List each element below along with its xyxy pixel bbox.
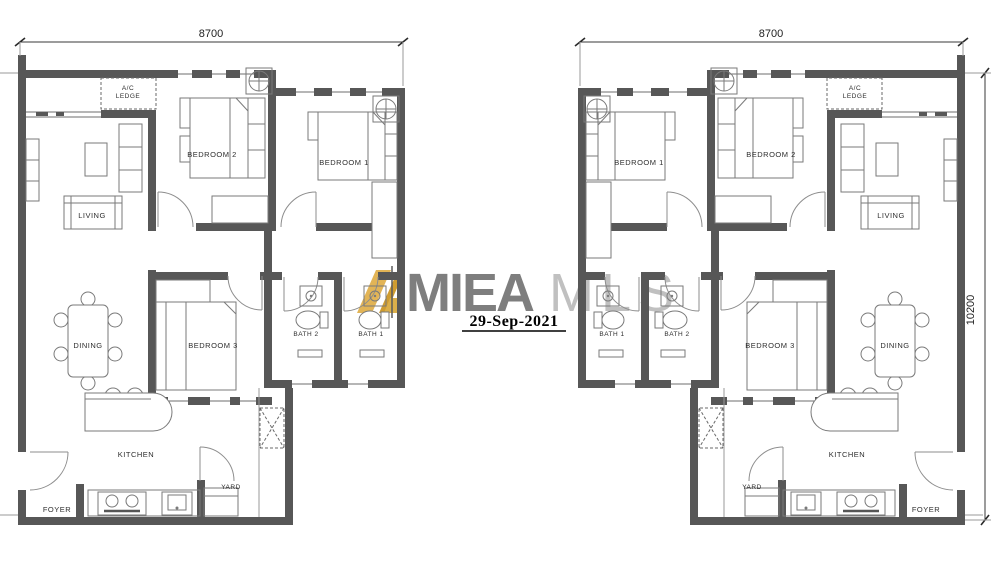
room-label-kitchen: KITCHEN xyxy=(118,450,154,459)
room-label-bath-1: BATH 1 xyxy=(599,331,624,338)
room-label-yard: YARD xyxy=(221,484,241,491)
room-label-bedroom-1: BEDROOM 1 xyxy=(614,158,664,167)
room-label-dining: DINING xyxy=(880,341,909,350)
room-label-bedroom-2: BEDROOM 2 xyxy=(187,150,237,159)
room-label-bath-2: BATH 2 xyxy=(664,331,689,338)
room-label-yard: YARD xyxy=(742,484,762,491)
floorplan-page: MIEA MLS A/CLEDGEBEDROOM 2BEDROOM 1LIVIN… xyxy=(0,0,1000,588)
room-label-foyer: FOYER xyxy=(912,505,940,514)
room-label-bath-2: BATH 2 xyxy=(293,331,318,338)
room-label-kitchen: KITCHEN xyxy=(829,450,865,459)
room-label-bedroom-3: BEDROOM 3 xyxy=(745,341,795,350)
dimension-label-right-width: 8700 xyxy=(759,28,783,40)
room-label-bedroom-2: BEDROOM 2 xyxy=(746,150,796,159)
watermark-date-group: 29-Sep-2021 xyxy=(462,313,566,331)
room-label-foyer: FOYER xyxy=(43,505,71,514)
dimension-label-left-width: 8700 xyxy=(199,28,223,40)
floorplan-svg: MIEA MLS A/CLEDGEBEDROOM 2BEDROOM 1LIVIN… xyxy=(0,0,1000,588)
room-label-bedroom-3: BEDROOM 3 xyxy=(188,341,238,350)
watermark-date: 29-Sep-2021 xyxy=(469,313,558,330)
room-label-living: LIVING xyxy=(78,211,106,220)
dimension-label-height: 10200 xyxy=(965,295,977,326)
room-label-bedroom-1: BEDROOM 1 xyxy=(319,158,369,167)
room-label-living: LIVING xyxy=(877,211,905,220)
room-label-bath-1: BATH 1 xyxy=(358,331,383,338)
room-label-dining: DINING xyxy=(73,341,102,350)
